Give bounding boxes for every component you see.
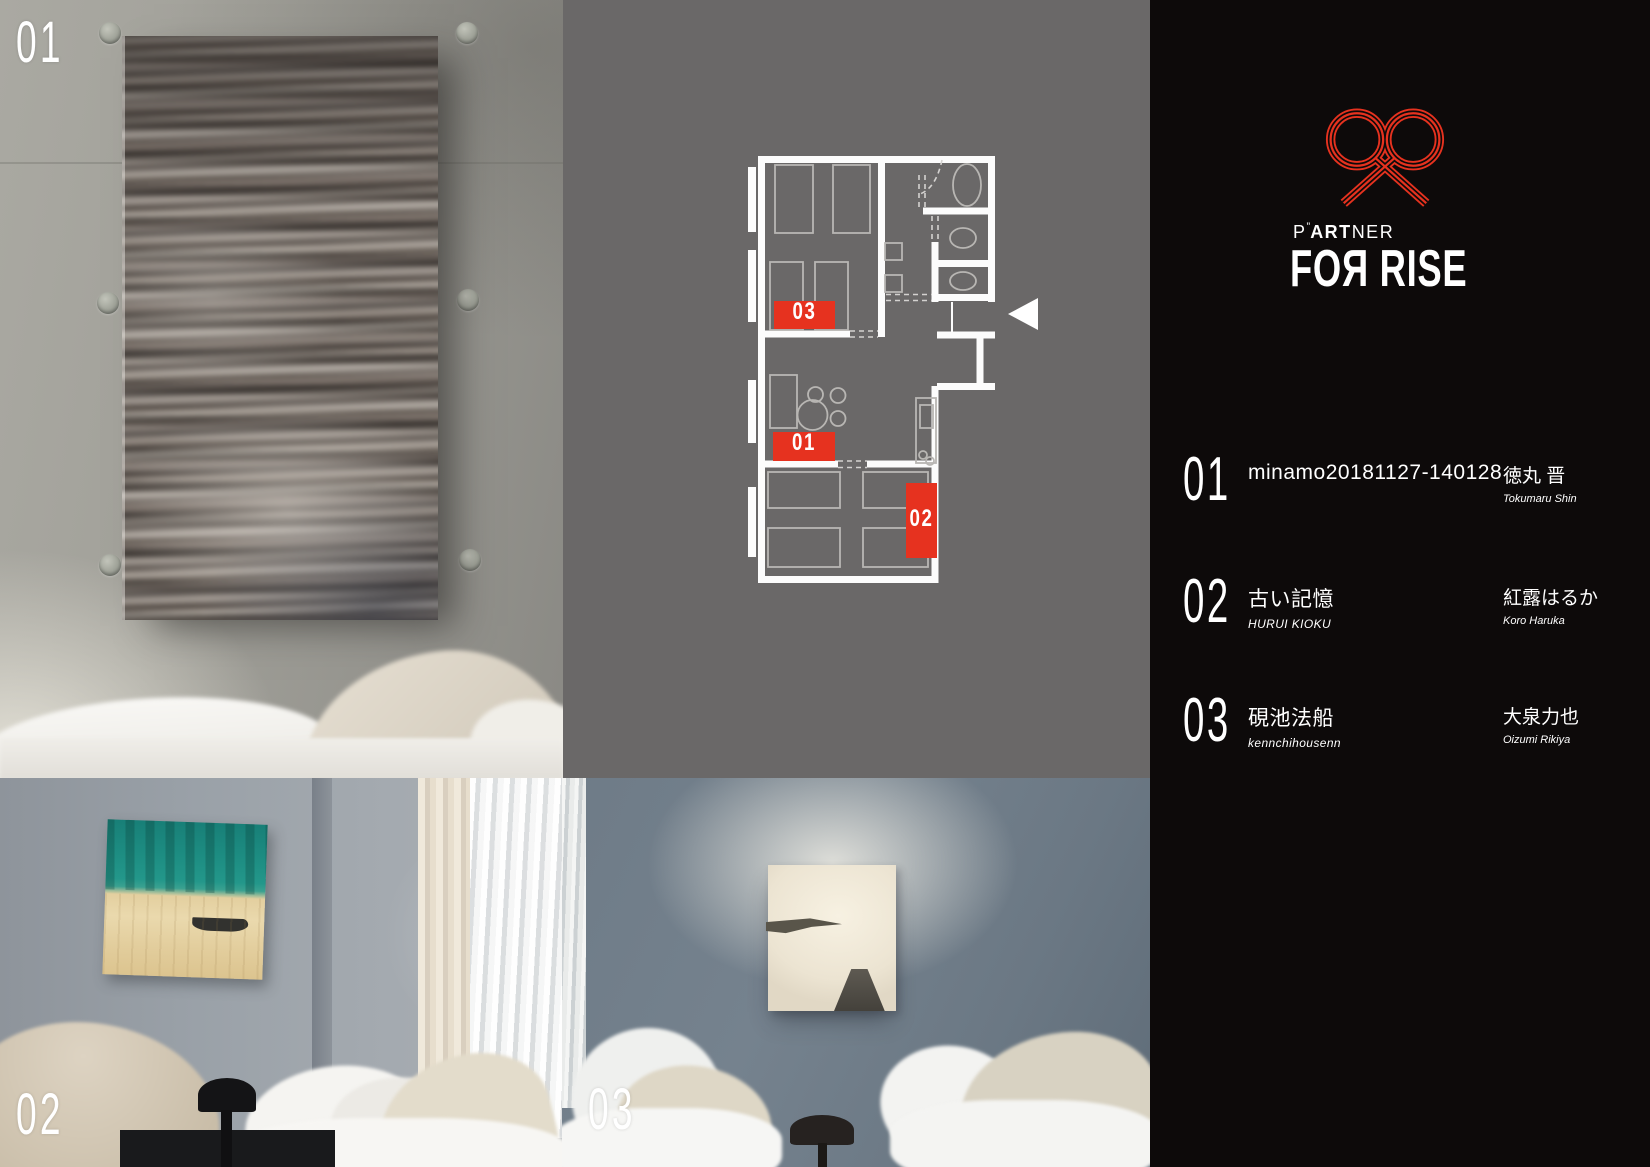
artwork-list-row: 01 minamo20181127-140128 徳丸 晋 Tokumaru S… (1150, 455, 1650, 565)
floorplan-panel: 03 01 02 (563, 0, 1150, 778)
artwork-title: minamo20181127-140128 (1248, 461, 1502, 485)
window-marks (748, 167, 756, 557)
furniture (768, 160, 981, 567)
artwork-title: 硯池法船 (1248, 702, 1341, 732)
row-number: 02 (1183, 571, 1231, 633)
plan-marker-03: 03 (774, 298, 835, 329)
partner-art: ART (1310, 222, 1352, 242)
boat-silhouette (766, 917, 842, 934)
outer-walls (758, 156, 995, 583)
artwork-kenchihousen-painting (768, 865, 896, 1011)
table-lamp (790, 1115, 854, 1145)
artist-block: 徳丸 晋 Tokumaru Shin (1503, 461, 1577, 505)
concrete-tie-hole (459, 549, 481, 571)
plan-marker-02: 02 (906, 483, 937, 558)
rock-silhouette (834, 969, 888, 1011)
photo-artwork-02: 02 (0, 778, 562, 1167)
bed-duvet (0, 738, 563, 778)
boat-silhouette (192, 917, 248, 932)
info-panel: P”ARTNER FOЯ RISE 01 minamo20181127-1401… (1150, 0, 1650, 1167)
artwork-list-row: 02 古い記憶 HURUI KIOKU 紅露はるか Koro Haruka (1150, 577, 1650, 687)
artist-name: 大泉力也 (1503, 702, 1579, 729)
artwork-title-block: 硯池法船 kennchihousenn (1248, 702, 1341, 750)
artist-romaji: Tokumaru Shin (1503, 493, 1577, 505)
bed-duvet (890, 1100, 1150, 1167)
water-ripple-texture (122, 36, 438, 620)
artwork-list-row: 03 硯池法船 kennchihousenn 大泉力也 Oizumi Rikiy… (1150, 696, 1650, 806)
ribbon-knot-logo-icon (1310, 98, 1460, 210)
concrete-tie-hole (99, 554, 121, 576)
art-placement-sheet: 01 (0, 0, 1650, 1167)
partner-ner: NER (1352, 222, 1395, 242)
artwork-hurui-kioku-painting (102, 819, 267, 979)
artist-block: 紅露はるか Koro Haruka (1503, 583, 1598, 627)
forrise-wordmark: FOЯ RISE (1290, 243, 1467, 295)
concrete-tie-hole (457, 289, 479, 311)
artwork-minamo-painting (122, 36, 438, 620)
photo-label-03: 03 (588, 1081, 636, 1139)
plan-marker-01: 01 (773, 429, 835, 461)
photo-artwork-03: 03 (562, 778, 1150, 1167)
table-lamp-stem (818, 1143, 827, 1167)
photo-label-02: 02 (16, 1086, 64, 1144)
artwork-title-romaji: kennchihousenn (1248, 736, 1341, 750)
row-number: 03 (1183, 690, 1231, 752)
photo-label-01: 01 (16, 14, 64, 72)
svg-text:02: 02 (910, 505, 934, 532)
door-openings (838, 175, 938, 468)
photo-artwork-01: 01 (0, 0, 563, 778)
artwork-title: 古い記憶 (1248, 583, 1334, 613)
artwork-title-romaji: HURUI KIOKU (1248, 617, 1334, 631)
artist-romaji: Oizumi Rikiya (1503, 734, 1579, 746)
artist-name: 徳丸 晋 (1503, 461, 1577, 488)
svg-text:03: 03 (793, 298, 817, 325)
table-lamp-stem (221, 1110, 232, 1167)
concrete-tie-hole (99, 22, 121, 44)
artist-romaji: Koro Haruka (1503, 615, 1598, 627)
artwork-title-block: 古い記憶 HURUI KIOKU (1248, 583, 1334, 631)
svg-text:01: 01 (792, 429, 816, 456)
artist-block: 大泉力也 Oizumi Rikiya (1503, 702, 1579, 746)
artist-name: 紅露はるか (1503, 583, 1598, 610)
artwork-title-block: minamo20181127-140128 (1248, 461, 1502, 489)
concrete-tie-hole (456, 22, 478, 44)
sheer-curtain-edge (562, 778, 586, 1108)
table-lamp (198, 1078, 256, 1112)
wall-pillar (312, 778, 332, 1083)
partner-p: P (1293, 222, 1307, 242)
entry-arrow-icon (1008, 298, 1038, 330)
floor-plan: 03 01 02 (690, 130, 1050, 590)
concrete-tie-hole (97, 292, 119, 314)
row-number: 01 (1183, 449, 1231, 511)
